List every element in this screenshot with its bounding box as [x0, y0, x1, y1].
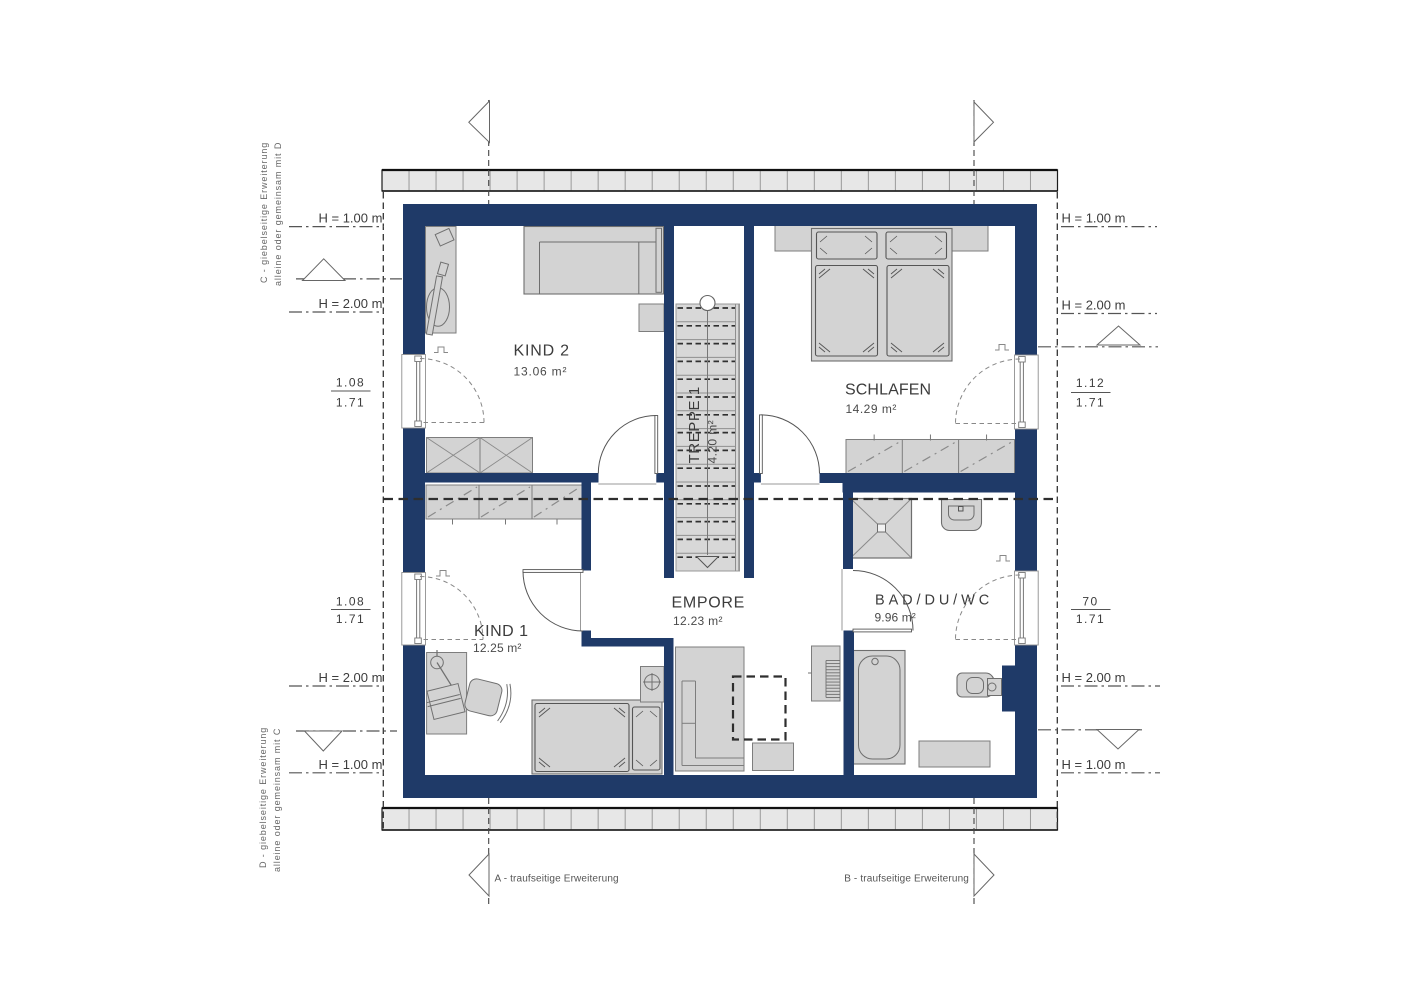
svg-text:H = 1.00 m: H = 1.00 m [1062, 211, 1126, 226]
svg-text:12.25 m²: 12.25 m² [473, 641, 522, 655]
svg-text:BAD/DU/WC: BAD/DU/WC [875, 592, 993, 608]
svg-text:H = 2.00 m: H = 2.00 m [319, 296, 383, 311]
svg-text:4.20 m²: 4.20 m² [706, 420, 720, 463]
svg-text:12.23 m²: 12.23 m² [673, 614, 723, 628]
svg-text:C - giebelseitige Erweiterung: C - giebelseitige Erweiterung [259, 142, 269, 283]
svg-text:D - giebelseitige Erweiterung: D - giebelseitige Erweiterung [258, 727, 268, 868]
svg-text:13.06 m²: 13.06 m² [514, 364, 568, 378]
svg-text:H = 1.00 m: H = 1.00 m [319, 211, 383, 226]
svg-text:1.08: 1.08 [336, 376, 365, 390]
svg-text:70: 70 [1082, 595, 1098, 609]
svg-text:H = 2.00 m: H = 2.00 m [319, 670, 383, 685]
svg-text:H = 2.00 m: H = 2.00 m [1062, 298, 1126, 313]
svg-text:KIND 2: KIND 2 [514, 343, 570, 360]
svg-text:A - traufseitige Erweiterung: A - traufseitige Erweiterung [495, 874, 619, 885]
svg-text:9.96 m²: 9.96 m² [875, 611, 916, 625]
svg-text:alleine oder gemeinsam mit C: alleine oder gemeinsam mit C [272, 728, 282, 872]
svg-text:1.08: 1.08 [336, 595, 365, 609]
svg-text:1.71: 1.71 [336, 612, 365, 626]
svg-text:EMPORE: EMPORE [672, 595, 746, 612]
svg-text:1.71: 1.71 [336, 396, 365, 410]
svg-text:H = 1.00 m: H = 1.00 m [319, 757, 383, 772]
svg-text:H = 2.00 m: H = 2.00 m [1062, 670, 1126, 685]
svg-text:KIND 1: KIND 1 [474, 623, 529, 640]
svg-text:1.12: 1.12 [1076, 376, 1105, 390]
svg-text:14.29 m²: 14.29 m² [846, 402, 897, 416]
svg-text:1.71: 1.71 [1076, 396, 1105, 410]
svg-text:alleine oder gemeinsam mit D: alleine oder gemeinsam mit D [273, 142, 283, 286]
svg-text:B - traufseitige Erweiterung: B - traufseitige Erweiterung [844, 874, 969, 885]
svg-text:H = 1.00 m: H = 1.00 m [1062, 757, 1126, 772]
svg-text:1.71: 1.71 [1076, 612, 1105, 626]
svg-text:SCHLAFEN: SCHLAFEN [845, 382, 931, 399]
svg-text:TREPPE 1: TREPPE 1 [686, 386, 703, 463]
